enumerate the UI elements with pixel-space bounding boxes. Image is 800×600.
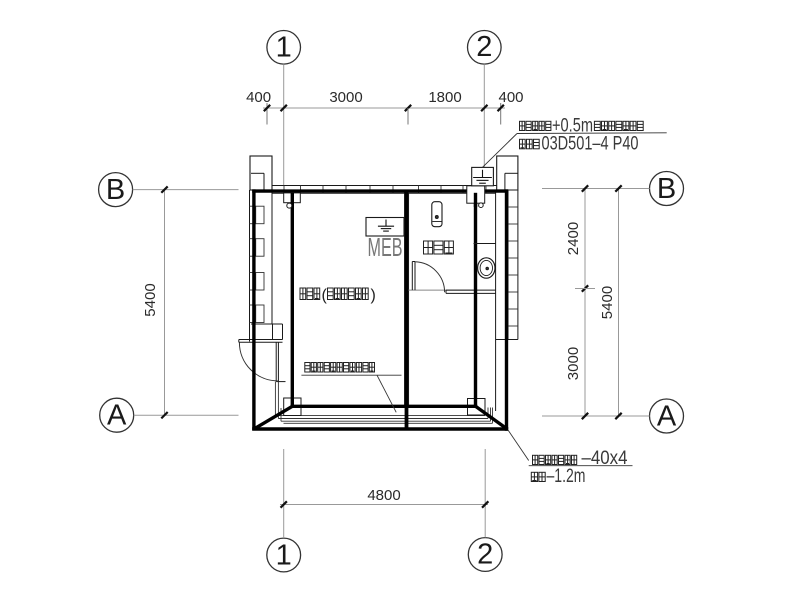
svg-text:3000: 3000 xyxy=(565,347,582,380)
svg-text:1: 1 xyxy=(276,32,292,64)
svg-text:400: 400 xyxy=(498,89,523,106)
svg-text:2: 2 xyxy=(477,539,493,571)
svg-text:4800: 4800 xyxy=(367,487,400,504)
svg-text:2: 2 xyxy=(476,31,492,63)
svg-text:A: A xyxy=(657,400,677,432)
svg-text:1: 1 xyxy=(276,539,292,571)
svg-text:2400: 2400 xyxy=(565,222,582,255)
svg-text:03D501–4 P40: 03D501–4 P40 xyxy=(542,133,639,155)
svg-text:1800: 1800 xyxy=(428,89,461,106)
svg-text:3000: 3000 xyxy=(329,89,362,106)
svg-text:5400: 5400 xyxy=(599,286,616,319)
svg-text:5400: 5400 xyxy=(142,283,159,316)
svg-text:400: 400 xyxy=(246,89,271,106)
svg-text:B: B xyxy=(106,174,125,206)
svg-text:–1.2m: –1.2m xyxy=(547,466,586,487)
svg-text:(: ( xyxy=(322,287,328,304)
svg-text:MEB: MEB xyxy=(368,232,403,262)
svg-text:): ) xyxy=(371,287,376,304)
svg-text:–40x4: –40x4 xyxy=(582,448,628,469)
svg-text:A: A xyxy=(107,400,127,432)
svg-text:B: B xyxy=(657,173,676,205)
